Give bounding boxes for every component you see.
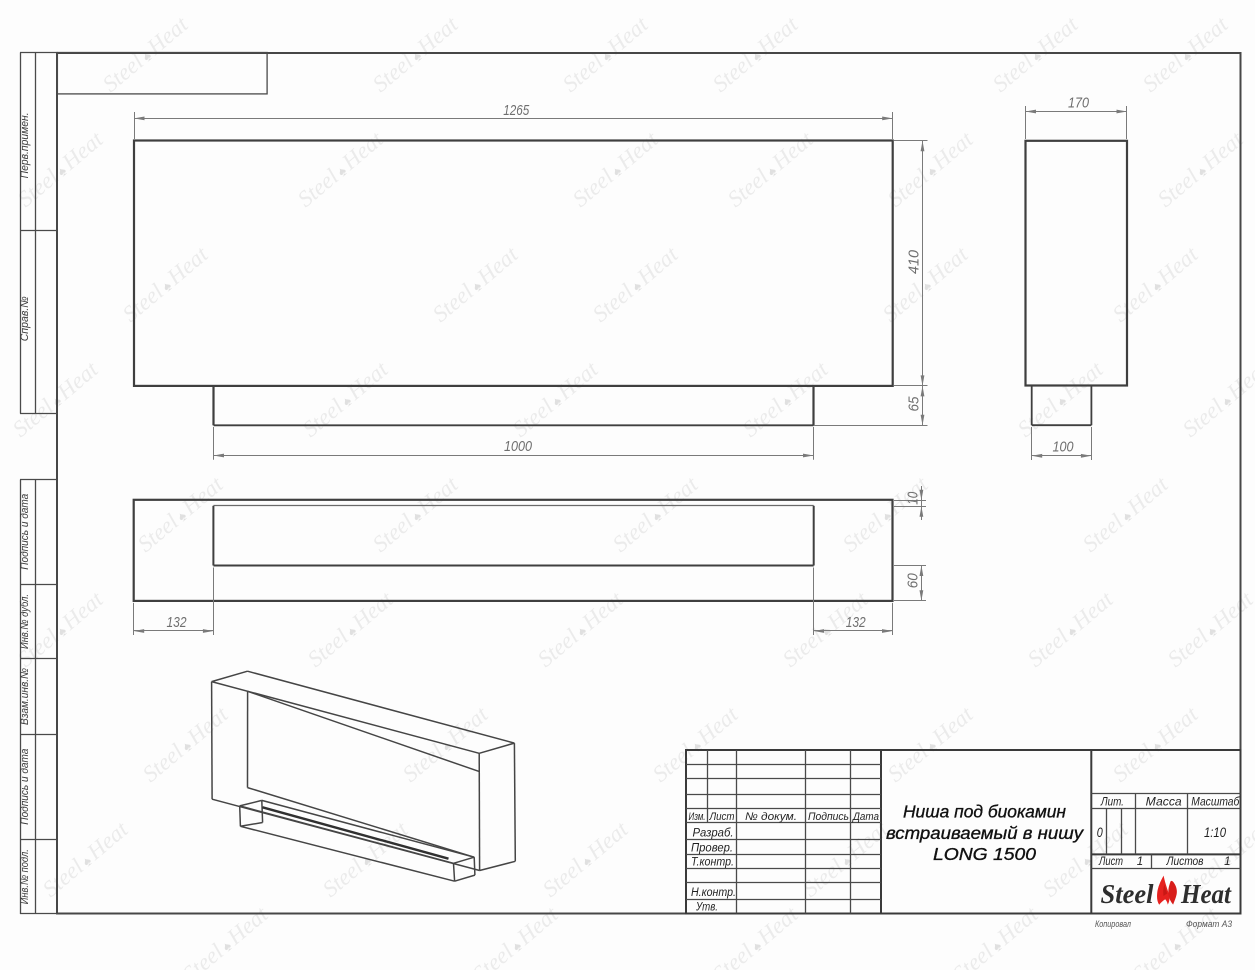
- svg-text:№ докум.: № докум.: [745, 811, 797, 823]
- svg-text:Инв.№ дубл.: Инв.№ дубл.: [19, 594, 31, 649]
- svg-text:1000: 1000: [504, 438, 533, 455]
- svg-text:Подпись и дата: Подпись и дата: [19, 749, 31, 825]
- svg-text:Масса: Масса: [1146, 797, 1182, 809]
- svg-text:Т.контр.: Т.контр.: [691, 857, 734, 869]
- svg-text:Провер.: Провер.: [691, 843, 733, 855]
- svg-text:Ниша под биокамин: Ниша под биокамин: [903, 802, 1066, 822]
- svg-text:1:10: 1:10: [1204, 824, 1226, 840]
- svg-text:Утв.: Утв.: [695, 902, 718, 914]
- svg-text:1265: 1265: [503, 102, 530, 119]
- svg-text:Разраб.: Разраб.: [693, 828, 734, 840]
- svg-text:Steel: Steel: [1101, 879, 1154, 909]
- svg-text:Копировал: Копировал: [1095, 919, 1131, 930]
- svg-text:Формат А3: Формат А3: [1186, 919, 1233, 930]
- svg-text:Справ.№: Справ.№: [19, 296, 31, 341]
- svg-text:Дата: Дата: [851, 811, 879, 823]
- svg-text:Подпись и дата: Подпись и дата: [19, 494, 31, 570]
- svg-text:Взам.инв.№: Взам.инв.№: [19, 668, 31, 725]
- svg-text:Листов: Листов: [1166, 856, 1204, 868]
- svg-text:Масштаб: Масштаб: [1191, 797, 1239, 809]
- svg-text:Изм.: Изм.: [689, 811, 706, 823]
- svg-text:410: 410: [906, 249, 923, 274]
- svg-text:10: 10: [904, 491, 921, 505]
- svg-text:Подпись: Подпись: [808, 811, 849, 823]
- svg-text:60: 60: [904, 573, 921, 589]
- svg-text:132: 132: [167, 614, 188, 631]
- svg-text:Инв.№ подл.: Инв.№ подл.: [19, 849, 31, 904]
- svg-text:100: 100: [1053, 439, 1075, 456]
- svg-text:Лит.: Лит.: [1100, 797, 1124, 809]
- svg-text:0: 0: [1097, 824, 1103, 840]
- svg-text:132: 132: [846, 614, 867, 631]
- svg-text:65: 65: [906, 396, 923, 412]
- svg-text:встраиваемый в нишу: встраиваемый в нишу: [886, 823, 1084, 843]
- svg-text:1: 1: [1137, 856, 1143, 868]
- svg-text:Лист: Лист: [709, 811, 735, 823]
- svg-text:Heat: Heat: [1180, 879, 1232, 909]
- svg-text:170: 170: [1068, 95, 1090, 112]
- svg-text:Н.контр.: Н.контр.: [691, 887, 736, 899]
- svg-text:LONG 1500: LONG 1500: [933, 844, 1036, 864]
- svg-text:1: 1: [1224, 856, 1230, 868]
- svg-text:Перв.примен.: Перв.примен.: [19, 112, 31, 178]
- svg-text:Лист: Лист: [1098, 856, 1123, 868]
